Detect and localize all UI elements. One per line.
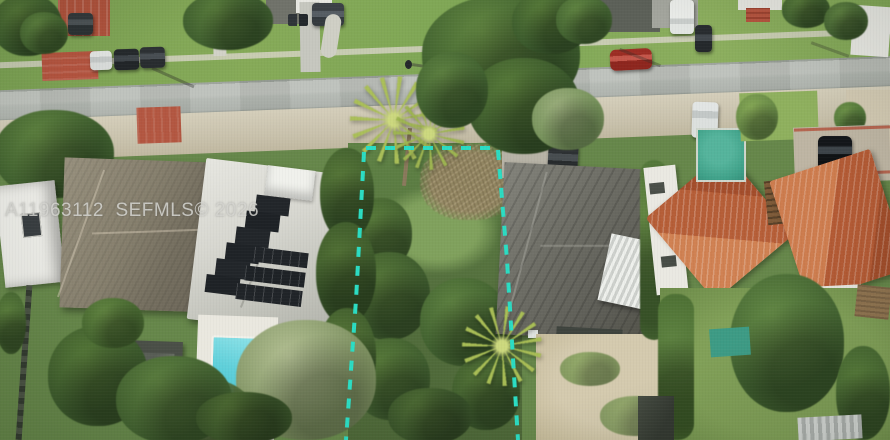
mls-watermark: A11963112 SEFMLS© 2026 [5, 200, 259, 222]
aerial-photo: A11963112 SEFMLS© 2026 [0, 0, 890, 440]
lot-boundary-left [346, 152, 364, 440]
lot-boundary-right [498, 150, 518, 440]
